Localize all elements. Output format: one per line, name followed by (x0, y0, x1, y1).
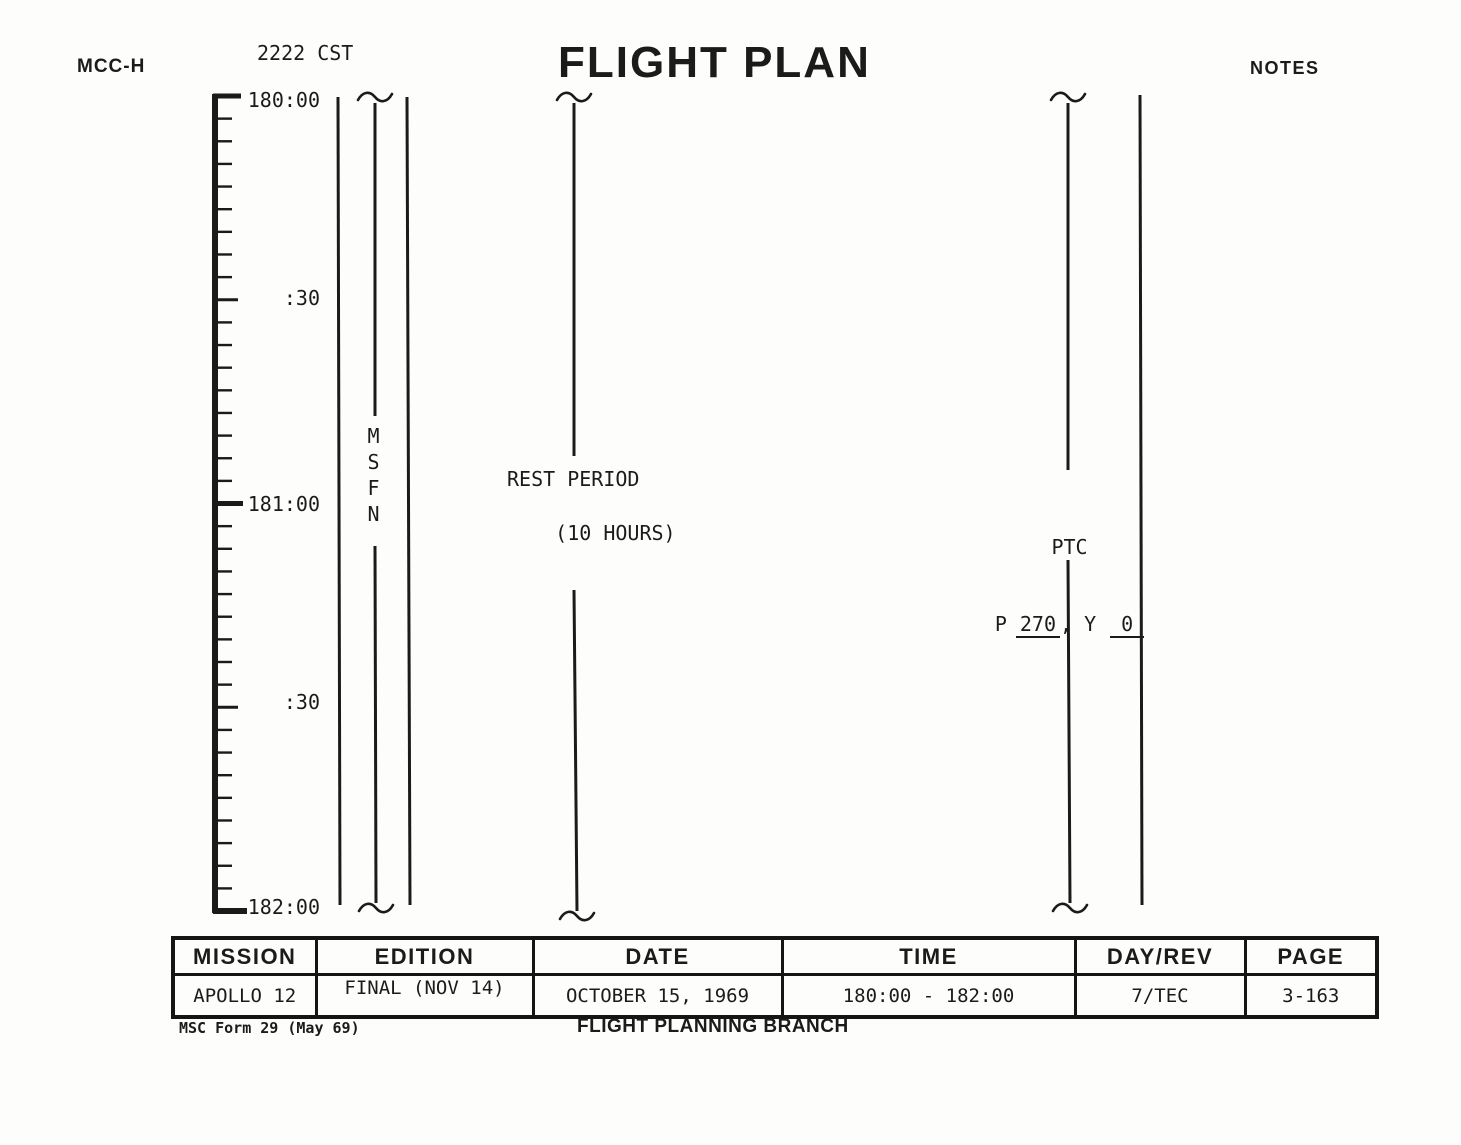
rest-period-annotation: REST PERIOD (10 HOURS) (507, 466, 676, 547)
ptc-p-label: P (995, 612, 1007, 636)
ptc-pitch-value: 270 (1016, 613, 1060, 638)
timeline-tick-label: 180:00 (200, 88, 320, 112)
timeline-tick-label: :30 (200, 286, 320, 310)
notes-column-label: NOTES (1250, 58, 1320, 79)
header-day-rev: DAY/REV (1075, 938, 1245, 975)
header-page: PAGE (1245, 938, 1377, 975)
footer-table-header-row: MISSION EDITION DATE TIME DAY/REV PAGE (173, 938, 1377, 975)
value-page: 3-163 (1245, 975, 1377, 1018)
ptc-annotation: PTC P270, Y0 (967, 485, 1172, 688)
cst-time-label: 2222 CST (257, 41, 353, 65)
footer-table-value-row: APOLLO 12 FINAL (NOV 14) OCTOBER 15, 196… (173, 975, 1377, 1018)
branch-label: FLIGHT PLANNING BRANCH (577, 1016, 849, 1038)
timeline-tick-label: 181:00 (200, 492, 320, 516)
value-mission: APOLLO 12 (173, 975, 316, 1018)
value-edition: FINAL (NOV 14) (316, 975, 533, 1018)
header-time: TIME (782, 938, 1075, 975)
ptc-attitude-line: P270, Y0 (967, 612, 1172, 638)
form-number-label: MSC Form 29 (May 69) (179, 1019, 360, 1037)
footer-info-table: MISSION EDITION DATE TIME DAY/REV PAGE A… (171, 936, 1379, 1019)
header-mission: MISSION (173, 938, 316, 975)
value-date: OCTOBER 15, 1969 (533, 975, 782, 1018)
value-time: 180:00 - 182:00 (782, 975, 1075, 1018)
rest-period-line2: (10 HOURS) (555, 521, 675, 545)
ptc-title: PTC (967, 535, 1172, 560)
ptc-y-label: , Y (1060, 612, 1096, 636)
flight-plan-page: MCC-H 2222 CST FLIGHT PLAN NOTES 180:00 … (0, 0, 1461, 1145)
station-label: MCC-H (77, 56, 145, 78)
timeline-tick-label: :30 (200, 690, 320, 714)
rest-period-line1: REST PERIOD (507, 467, 639, 491)
page-title: FLIGHT PLAN (558, 38, 871, 88)
timeline-tick-label: 182:00 (200, 895, 320, 919)
msfn-coverage-label: MSFN (366, 423, 381, 527)
header-edition: EDITION (316, 938, 533, 975)
value-day-rev: 7/TEC (1075, 975, 1245, 1018)
header-date: DATE (533, 938, 782, 975)
ptc-yaw-value: 0 (1110, 613, 1144, 638)
